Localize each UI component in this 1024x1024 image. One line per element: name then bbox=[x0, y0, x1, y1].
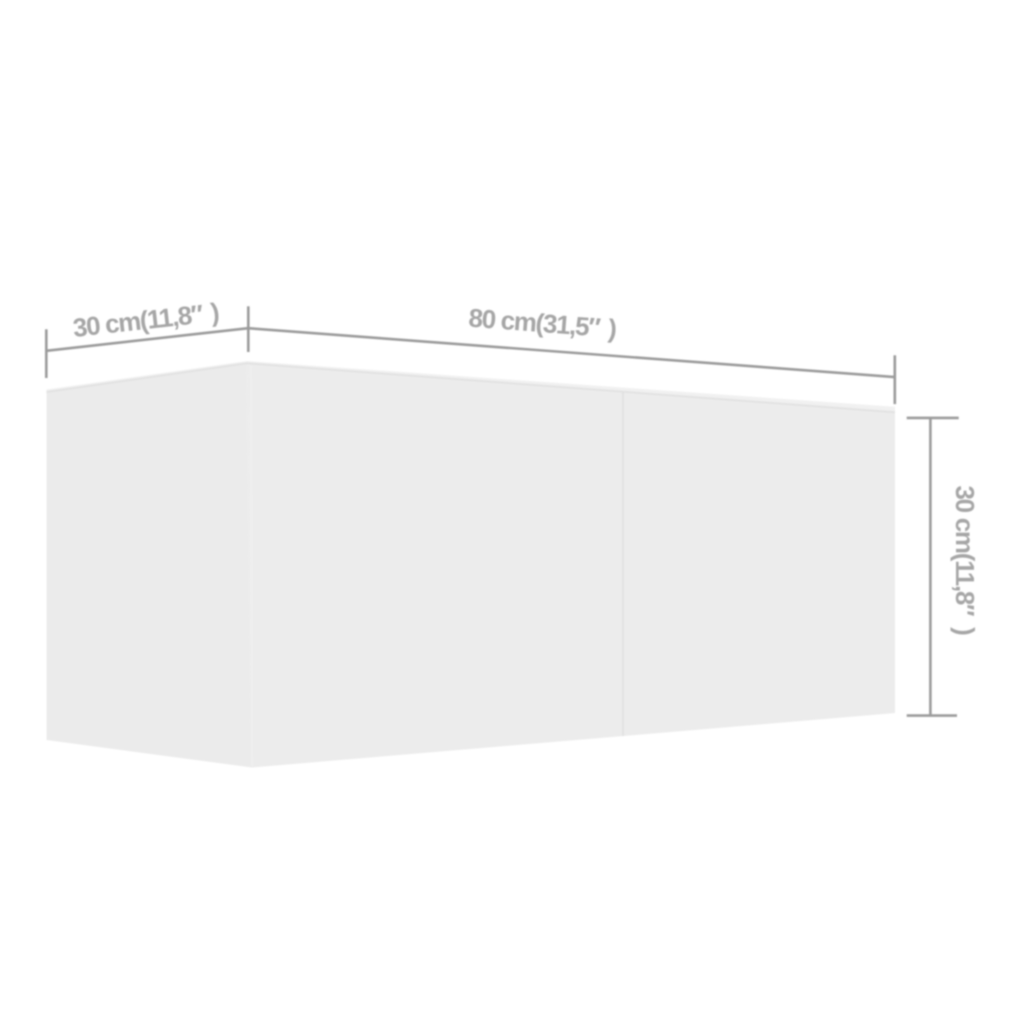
svg-text:30 cm(11,8″ ): 30 cm(11,8″ ) bbox=[950, 486, 980, 636]
svg-text:80 cm(31,5″ ): 80 cm(31,5″ ) bbox=[468, 303, 618, 344]
svg-text:30 cm(11,8″ ): 30 cm(11,8″ ) bbox=[71, 297, 220, 343]
